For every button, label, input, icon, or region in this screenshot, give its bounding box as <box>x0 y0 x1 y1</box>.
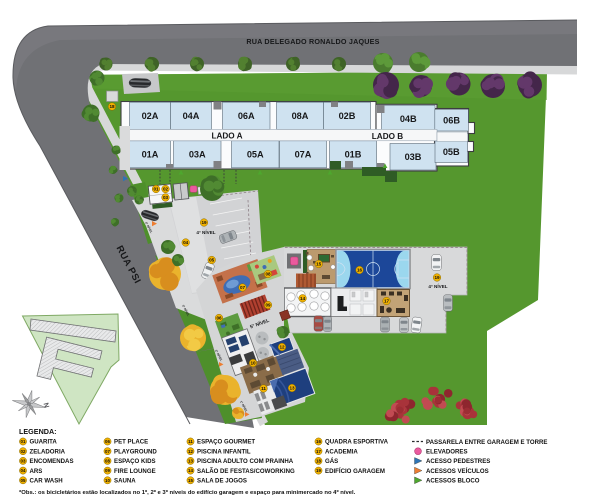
svg-text:PET PLACE: PET PLACE <box>114 439 148 446</box>
svg-text:03B: 03B <box>405 152 422 162</box>
svg-text:14: 14 <box>188 468 193 473</box>
svg-text:07: 07 <box>240 285 246 290</box>
svg-text:ACESSOS VEÍCULOS: ACESSOS VEÍCULOS <box>426 467 489 475</box>
svg-text:4° NÍVEL: 4° NÍVEL <box>196 228 215 235</box>
svg-text:ENCOMENDAS: ENCOMENDAS <box>30 458 74 465</box>
svg-text:15: 15 <box>188 478 193 483</box>
svg-text:05: 05 <box>209 258 215 263</box>
svg-text:03A: 03A <box>189 150 206 160</box>
svg-text:EDIFÍCIO GARAGEM: EDIFÍCIO GARAGEM <box>325 467 385 475</box>
svg-text:CAR WASH: CAR WASH <box>30 478 63 485</box>
svg-text:19: 19 <box>316 468 321 473</box>
svg-text:09: 09 <box>105 468 110 473</box>
svg-text:18: 18 <box>109 104 115 109</box>
svg-text:PISCINA ADULTO COM PRAINHA: PISCINA ADULTO COM PRAINHA <box>197 458 294 465</box>
svg-text:02: 02 <box>21 449 26 454</box>
svg-text:03: 03 <box>21 458 26 463</box>
svg-text:08A: 08A <box>292 111 309 121</box>
svg-text:PISCINA INFANTIL: PISCINA INFANTIL <box>197 448 251 455</box>
svg-text:4° NÍVEL: 4° NÍVEL <box>428 282 447 289</box>
svg-text:12: 12 <box>188 449 193 454</box>
svg-text:03: 03 <box>163 195 169 200</box>
svg-text:14: 14 <box>300 296 306 301</box>
svg-text:04: 04 <box>21 468 26 473</box>
svg-text:19: 19 <box>434 275 440 280</box>
svg-text:04B: 04B <box>400 114 417 124</box>
svg-text:*Obs.: os bicicletários estão: *Obs.: os bicicletários estão localizado… <box>19 490 356 496</box>
svg-text:PASSARELA ENTRE GARAGEM E TORR: PASSARELA ENTRE GARAGEM E TORRE <box>426 439 547 446</box>
svg-text:18: 18 <box>316 458 321 463</box>
svg-text:ACESSO PEDESTRES: ACESSO PEDESTRES <box>426 458 490 465</box>
svg-text:GUARITA: GUARITA <box>30 439 58 446</box>
svg-text:17: 17 <box>384 299 390 304</box>
svg-text:02A: 02A <box>142 111 159 121</box>
svg-text:05: 05 <box>21 478 26 483</box>
svg-text:ESPAÇO KIDS: ESPAÇO KIDS <box>114 458 156 465</box>
svg-text:ACADEMIA: ACADEMIA <box>325 448 358 455</box>
svg-text:09: 09 <box>265 303 271 308</box>
svg-text:06: 06 <box>105 439 110 444</box>
svg-text:01: 01 <box>153 187 159 192</box>
svg-text:16: 16 <box>316 439 321 444</box>
svg-text:SALÃO DE FESTAS/COWORKING: SALÃO DE FESTAS/COWORKING <box>197 468 295 475</box>
svg-text:01A: 01A <box>142 150 159 160</box>
svg-text:07: 07 <box>105 449 110 454</box>
svg-text:01: 01 <box>21 439 26 444</box>
svg-text:13: 13 <box>188 458 193 463</box>
svg-text:12: 12 <box>279 345 285 350</box>
svg-text:SAUNA: SAUNA <box>114 478 136 485</box>
svg-text:02: 02 <box>163 187 169 192</box>
svg-text:13: 13 <box>289 386 295 391</box>
svg-text:PLAYGROUND: PLAYGROUND <box>114 448 157 455</box>
svg-text:ZELADORIA: ZELADORIA <box>30 448 66 455</box>
svg-text:GÁS: GÁS <box>325 458 338 465</box>
svg-text:LADO A: LADO A <box>211 131 242 140</box>
svg-text:ARS: ARS <box>30 468 43 475</box>
svg-text:LADO B: LADO B <box>372 132 403 141</box>
svg-text:SALA DE JOGOS: SALA DE JOGOS <box>197 478 247 485</box>
svg-text:01B: 01B <box>345 150 362 160</box>
svg-text:ACESSOS BLOCO: ACESSOS BLOCO <box>426 478 480 485</box>
svg-text:FIRE LOUNGE: FIRE LOUNGE <box>114 468 156 475</box>
svg-text:15: 15 <box>316 262 322 267</box>
svg-text:ESPAÇO GOURMET: ESPAÇO GOURMET <box>197 439 255 446</box>
svg-text:06B: 06B <box>443 116 460 126</box>
svg-text:19: 19 <box>201 220 207 225</box>
svg-text:04A: 04A <box>183 111 200 121</box>
svg-text:05B: 05B <box>443 147 460 157</box>
svg-text:RUA DELEGADO RONALDO JAQUES: RUA DELEGADO RONALDO JAQUES <box>246 37 379 46</box>
svg-text:07A: 07A <box>295 150 312 160</box>
svg-text:10: 10 <box>250 361 256 366</box>
svg-text:08: 08 <box>105 458 110 463</box>
svg-text:16: 16 <box>357 268 363 273</box>
svg-text:05A: 05A <box>247 150 264 160</box>
svg-text:11: 11 <box>261 386 266 391</box>
svg-text:LEGENDA:: LEGENDA: <box>19 427 57 436</box>
svg-text:02B: 02B <box>339 111 356 121</box>
svg-text:06: 06 <box>216 316 222 321</box>
svg-text:04: 04 <box>183 240 189 245</box>
svg-text:08: 08 <box>265 272 271 277</box>
svg-text:06A: 06A <box>238 111 255 121</box>
svg-text:10: 10 <box>105 478 110 483</box>
svg-text:QUADRA ESPORTIVA: QUADRA ESPORTIVA <box>325 439 389 446</box>
svg-text:11: 11 <box>188 439 193 444</box>
svg-text:ELEVADORES: ELEVADORES <box>426 449 468 456</box>
svg-text:17: 17 <box>316 449 321 454</box>
